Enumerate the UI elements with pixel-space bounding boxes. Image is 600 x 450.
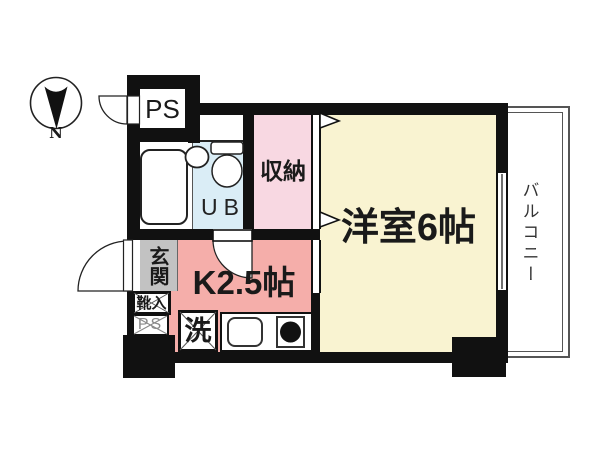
ps-door bbox=[99, 96, 140, 124]
kitchen-sink bbox=[227, 317, 263, 347]
pillar bbox=[123, 335, 175, 378]
floorplan: N PS UB 収納 洋室6帖 K2.5帖 玄関 靴入 PS 洗 バルコニー bbox=[0, 0, 600, 450]
storage-label: 収納 bbox=[252, 157, 314, 185]
compass-icon bbox=[31, 78, 82, 130]
window bbox=[496, 173, 508, 290]
entrance-door bbox=[78, 240, 133, 291]
washer-label: 洗 bbox=[178, 310, 218, 352]
balcony-label: バルコニー bbox=[517, 168, 541, 298]
shoe-cabinet-label: 靴入 bbox=[132, 291, 171, 315]
kitchen-room-opening bbox=[311, 240, 321, 293]
wall bbox=[252, 229, 320, 240]
wall bbox=[188, 103, 508, 115]
stove bbox=[276, 316, 305, 348]
unit-bath-label: UB bbox=[197, 193, 249, 221]
wall bbox=[127, 131, 200, 142]
kitchen-label: K2.5帖 bbox=[177, 260, 311, 304]
bath-alcove bbox=[200, 115, 243, 142]
wall bbox=[496, 103, 508, 173]
entrance-label: 玄関 bbox=[143, 239, 171, 292]
north-label: N bbox=[46, 125, 66, 142]
pillar bbox=[452, 337, 506, 377]
western-room-label: 洋室6帖 bbox=[321, 206, 496, 250]
pipe-space-label: PS bbox=[132, 314, 169, 336]
bathtub bbox=[140, 149, 188, 225]
ps-room-label: PS bbox=[137, 86, 188, 131]
